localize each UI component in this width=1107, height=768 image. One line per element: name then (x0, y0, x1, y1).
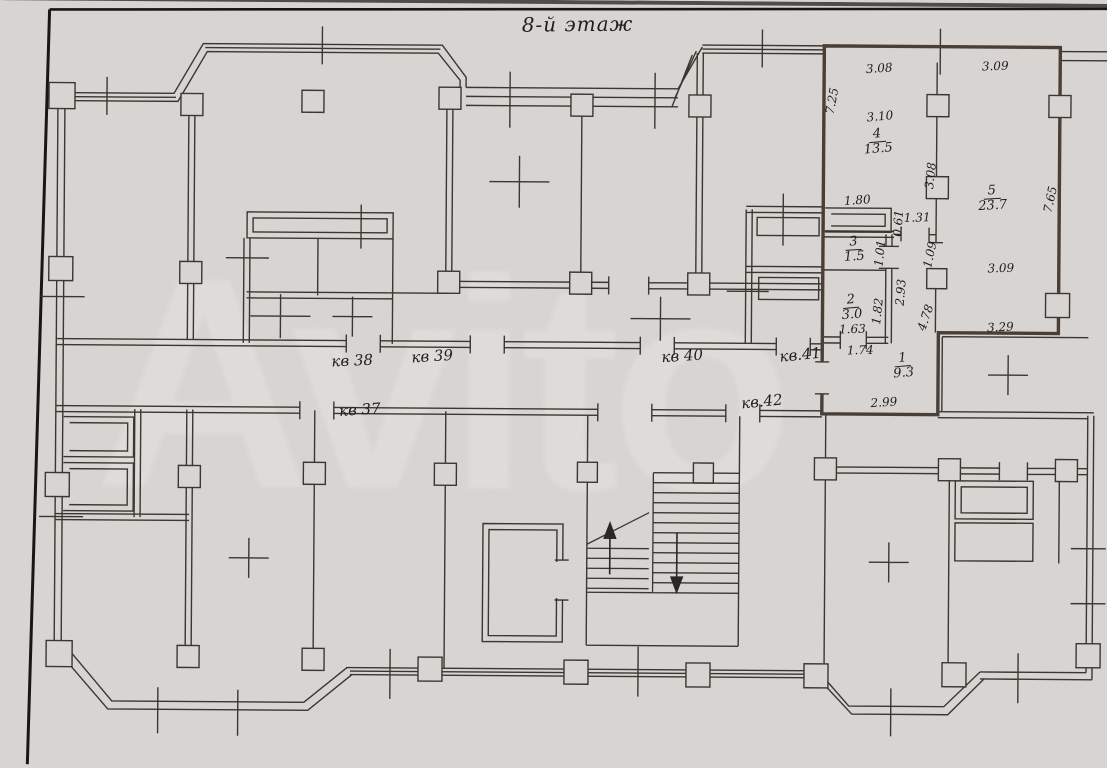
room-label-2: 2 3.0 (840, 293, 863, 324)
dim-room5-mid-width: 3.09 (987, 261, 1014, 276)
room-label-1: 1 9.3 (892, 351, 915, 382)
dim-rooms23-height: 2.93 (893, 279, 909, 307)
walls-layer (38, 22, 1107, 741)
dim-room1-width: 2.99 (870, 394, 898, 410)
dim-room4-top-width: 3.08 (865, 60, 893, 76)
dim-hall-width-mid: 1.74 (847, 343, 874, 358)
apartment-label-kv38: кв 38 (331, 351, 373, 371)
apartment-label-kv40: кв 40 (661, 346, 704, 367)
room-label-3: 3 1.5 (843, 235, 866, 266)
dim-closet-width: 1.80 (844, 192, 872, 208)
room-area: 1.5 (844, 250, 866, 266)
dim-rooms45-divider-height: 3.08 (922, 162, 939, 190)
dim-room2-height: 1.82 (869, 297, 886, 325)
dim-room5-bottom-width: 3.29 (987, 320, 1014, 335)
dim-room3-inner-height: 1.01 (871, 239, 888, 267)
room-area: 13.5 (863, 142, 893, 159)
dim-room4-inner-width: 3.10 (866, 108, 894, 125)
room-area: 9.3 (893, 366, 915, 382)
apartment-label-kv37: кв 37 (339, 399, 382, 420)
floor-plan: Avito (0, 0, 1107, 768)
dim-room5-top-width: 3.09 (982, 59, 1009, 74)
dim-room4-door-width: 1.31 (904, 210, 931, 225)
apartment-label-kv39: кв 39 (411, 346, 454, 367)
room-label-5: 5 23.7 (977, 183, 1008, 214)
dim-room2-width: 1.63 (839, 322, 866, 337)
columns-layer (44, 82, 1104, 689)
scanned-floor-plan-photo: Avito (0, 0, 1107, 768)
room-label-4: 4 13.5 (862, 126, 893, 158)
floor-plan-drawing (0, 0, 1107, 768)
room-area: 23.7 (978, 199, 1008, 215)
floor-title: 8-й этаж (522, 12, 634, 37)
